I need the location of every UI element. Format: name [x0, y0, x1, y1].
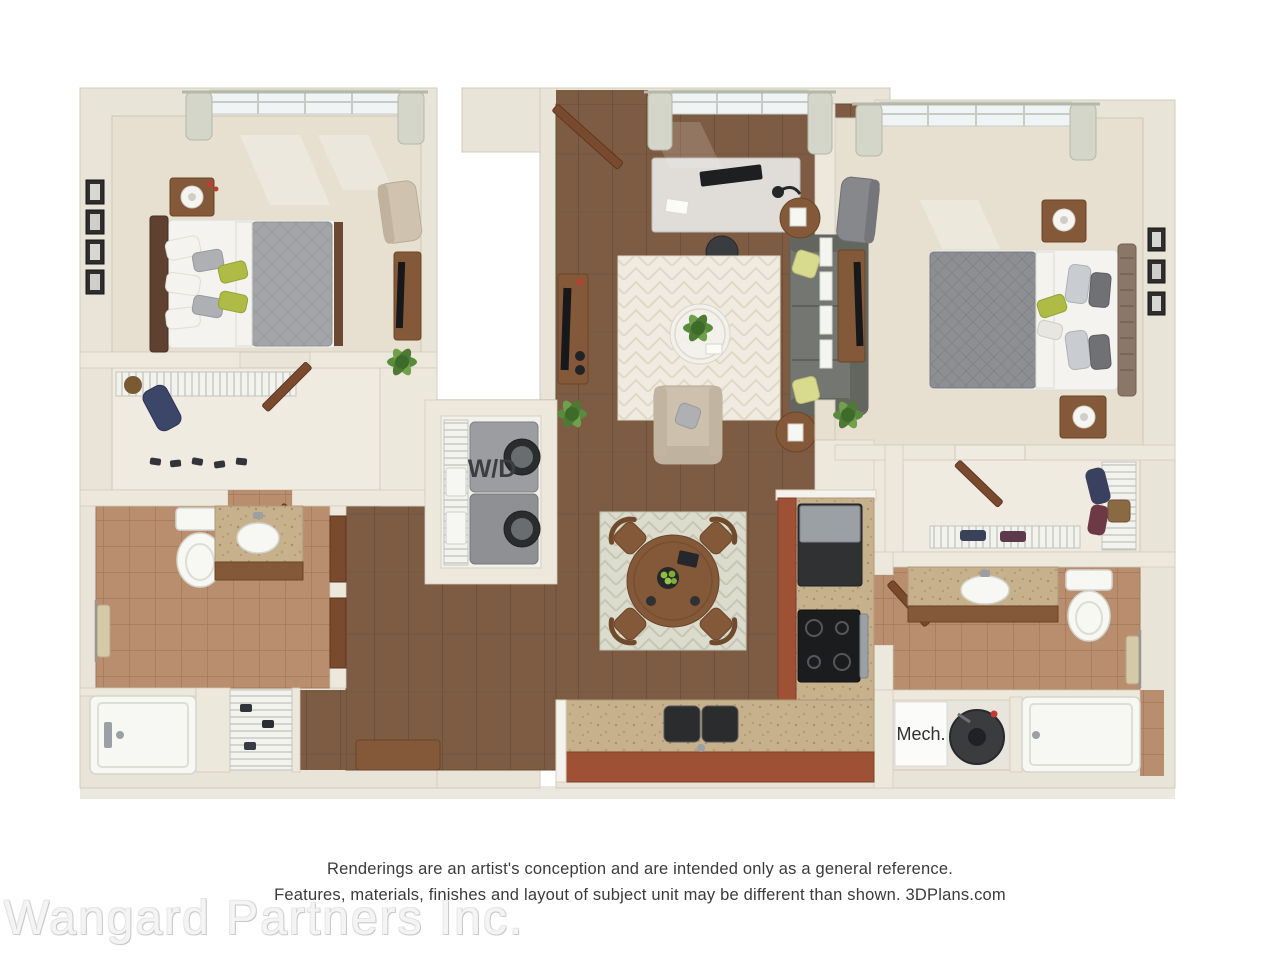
vanity-left: [215, 506, 303, 580]
laundry-closet: W/D: [441, 416, 541, 568]
table-lamp: [1073, 406, 1095, 428]
shoe-closet: [230, 690, 292, 770]
stove: [798, 610, 868, 682]
decor-box: [788, 424, 803, 441]
speaker: [575, 365, 585, 375]
floor-plan-svg: W/D: [0, 0, 1280, 960]
curtain: [186, 92, 212, 140]
folded-clothes: [960, 530, 986, 541]
side-table-bottom: [776, 412, 816, 452]
bathtub-right: [1022, 697, 1140, 772]
pillow: [1064, 264, 1091, 305]
sink: [237, 523, 279, 553]
accent-chair-right: [836, 176, 880, 244]
bed-right: [930, 244, 1136, 396]
bed-left: [150, 216, 343, 352]
floor-plan-image: W/D: [0, 0, 1280, 960]
headboard: [1118, 244, 1136, 396]
bedroom-right-door-gap: [815, 400, 835, 440]
fruit-bowl: [657, 567, 679, 589]
pillow-dark: [1089, 272, 1112, 308]
water-heater: [950, 710, 1004, 764]
tv-dresser-left: [394, 252, 421, 340]
hall-console: [356, 740, 440, 770]
picture-frames-right: [1148, 228, 1165, 315]
counter-end-panel: [556, 700, 566, 782]
folded-clothes: [1000, 531, 1026, 542]
curtain: [808, 92, 832, 154]
disclaimer-line-1: Renderings are an artist's conception an…: [0, 860, 1280, 879]
curtain: [398, 92, 424, 144]
floors: [96, 104, 1164, 776]
dining-table: [627, 535, 719, 627]
pillow: [1064, 330, 1091, 371]
sink: [961, 576, 1009, 604]
papers: [665, 199, 689, 215]
entry-wall-jog: [462, 88, 540, 152]
nightstand-bottom: [1060, 396, 1106, 438]
bath-left-door-gap: [228, 490, 292, 506]
faucet: [980, 570, 990, 577]
tub-right-deck: [1140, 690, 1164, 776]
pillow: [165, 272, 201, 297]
entry-door-gap: [556, 90, 648, 104]
table-lamp: [181, 186, 203, 208]
footboard: [334, 222, 343, 346]
mech-label: Mech.: [896, 724, 945, 744]
folded-sheet: [236, 222, 252, 346]
tub-faucet: [1032, 731, 1040, 739]
towel-bar-left: [96, 600, 110, 662]
cabinet-faces: [778, 498, 796, 703]
table-lamp: [1053, 209, 1075, 231]
cabinet-faces-bottom: [566, 752, 874, 782]
laundry-label: W/D: [468, 455, 517, 483]
basket: [446, 512, 466, 544]
book: [706, 344, 722, 354]
armchair: [654, 386, 722, 464]
vanity-right: [908, 567, 1058, 622]
coffee-table: [670, 304, 730, 364]
wire-shelf: [116, 372, 296, 396]
decor-box: [790, 208, 806, 226]
tv-console-right: [838, 250, 865, 362]
oven-handle: [860, 614, 868, 678]
shower-fixture: [104, 722, 112, 748]
tv-console-living: [558, 274, 588, 384]
shower-left: [90, 696, 196, 774]
nightstand-left: [170, 178, 219, 216]
headboard: [150, 216, 168, 352]
curtain: [648, 92, 672, 150]
pillow-dark: [1089, 334, 1112, 370]
towel-bar-right: [1126, 630, 1140, 688]
curtain: [1070, 104, 1096, 160]
bag: [124, 376, 142, 394]
toilet-right: [1066, 570, 1112, 641]
faucet: [253, 512, 263, 519]
basket: [446, 468, 466, 496]
accent-chair-left: [377, 180, 423, 245]
speaker: [575, 351, 585, 361]
linen-door-upper: [330, 516, 346, 582]
closet-door-gap: [955, 445, 1025, 460]
nightstand-top: [1042, 200, 1086, 242]
curtain: [856, 104, 882, 156]
refrigerator: [798, 504, 862, 586]
disclaimer-line-2: Features, materials, finishes and layout…: [0, 886, 1280, 905]
dining-area: [600, 512, 746, 650]
linen-door-lower: [330, 598, 346, 668]
faucet: [697, 744, 705, 752]
side-table-top: [780, 198, 820, 238]
storage-basket: [1108, 500, 1130, 522]
hallway-floor-lower: [300, 690, 346, 770]
